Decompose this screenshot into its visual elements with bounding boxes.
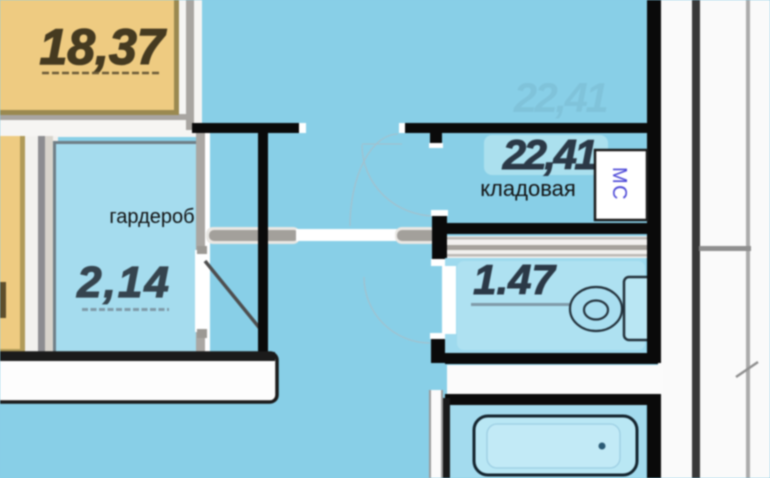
svg-text:18,37: 18,37 [39, 19, 166, 75]
svg-text:МС: МС [608, 167, 630, 201]
svg-text:кладовая: кладовая [480, 176, 576, 201]
svg-text:1.47: 1.47 [473, 256, 556, 303]
svg-text:22,41: 22,41 [513, 74, 608, 121]
svg-text:22,41: 22,41 [502, 131, 597, 178]
svg-text:гардероб: гардероб [109, 206, 194, 228]
svg-text:2,14: 2,14 [76, 258, 171, 307]
